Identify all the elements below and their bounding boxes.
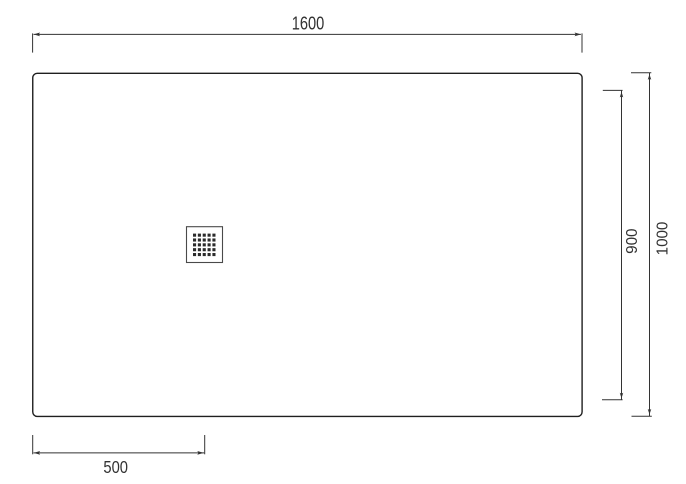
svg-text:1000: 1000 [655,221,672,255]
svg-text:900: 900 [624,228,641,254]
svg-text:500: 500 [103,457,128,477]
svg-text:1600: 1600 [292,13,325,33]
